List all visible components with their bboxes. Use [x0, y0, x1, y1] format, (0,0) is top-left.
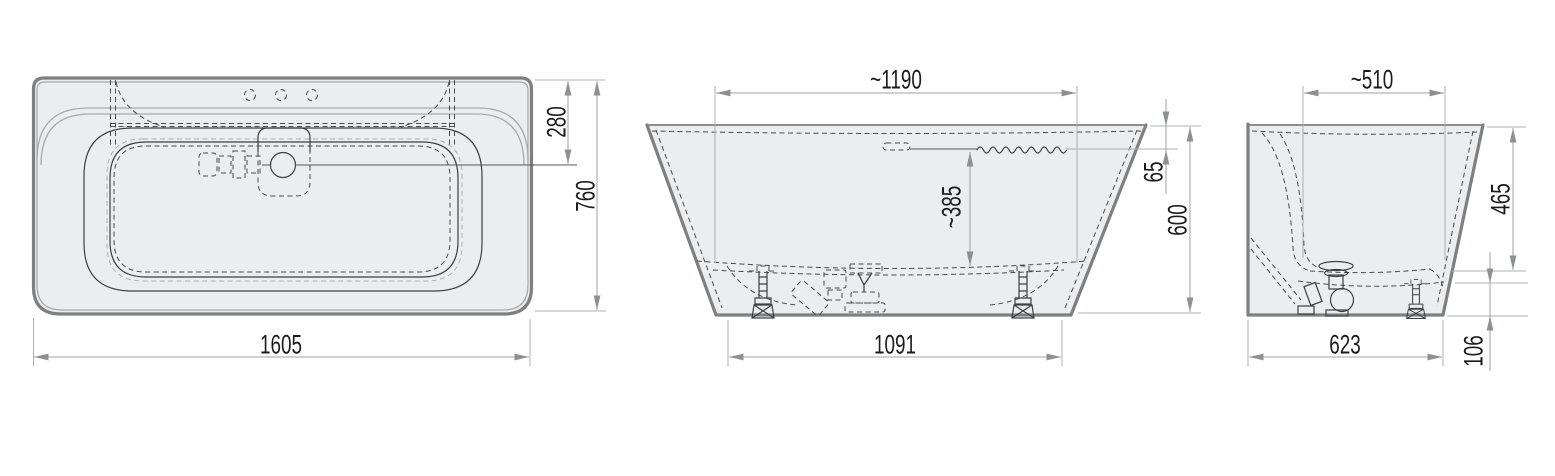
dim-end-base-height: 106 [1447, 252, 1528, 371]
arrowhead [716, 90, 731, 97]
dim-label-65: 65 [1138, 161, 1168, 182]
tub-body-fill [647, 125, 1146, 315]
dim-label-760: 760 [570, 180, 600, 212]
ext-line [1447, 283, 1528, 316]
arrowhead [565, 150, 572, 165]
arrowhead [1062, 90, 1077, 97]
dim-label-1091: 1091 [874, 329, 916, 359]
dim-label-385: ~385 [936, 186, 966, 229]
dim-label-465: 465 [1485, 183, 1515, 215]
arrowhead [1163, 112, 1170, 127]
dim-label-623: 623 [1329, 329, 1361, 359]
arrowhead [1510, 128, 1517, 143]
dim-label-1190: ~1190 [870, 64, 922, 94]
arrowhead [1249, 354, 1264, 361]
dim-end-base-width: 623 [1248, 320, 1443, 366]
arrowhead [1487, 316, 1494, 331]
arrowhead [565, 81, 572, 96]
arrowhead [1187, 127, 1194, 142]
dim-label-600: 600 [1162, 204, 1192, 236]
side-view [647, 125, 1146, 318]
arrowhead [1428, 354, 1443, 361]
end-view [1248, 124, 1483, 319]
arrowhead [1510, 256, 1517, 271]
arrowhead [1430, 90, 1445, 97]
dim-label-1605: 1605 [260, 329, 302, 359]
arrowhead [1304, 90, 1319, 97]
dim-label-510: ~510 [1351, 64, 1394, 94]
arrowhead [1047, 354, 1062, 361]
arrowhead [1487, 269, 1494, 284]
dim-top-width: 1605 [34, 318, 531, 366]
technical-drawing-canvas: 280 760 1605 [0, 0, 1555, 476]
arrowhead [515, 354, 530, 361]
arrowhead [594, 296, 601, 311]
arrowhead [594, 81, 601, 96]
dim-label-280: 280 [541, 106, 571, 138]
arrowhead [1187, 298, 1194, 313]
arrowhead [729, 354, 744, 361]
arrowhead [34, 354, 49, 361]
drawing-svg: 280 760 1605 [0, 0, 1555, 476]
dim-label-106: 106 [1458, 335, 1488, 367]
top-view [34, 78, 578, 314]
dim-side-base-length: 1091 [728, 320, 1062, 366]
